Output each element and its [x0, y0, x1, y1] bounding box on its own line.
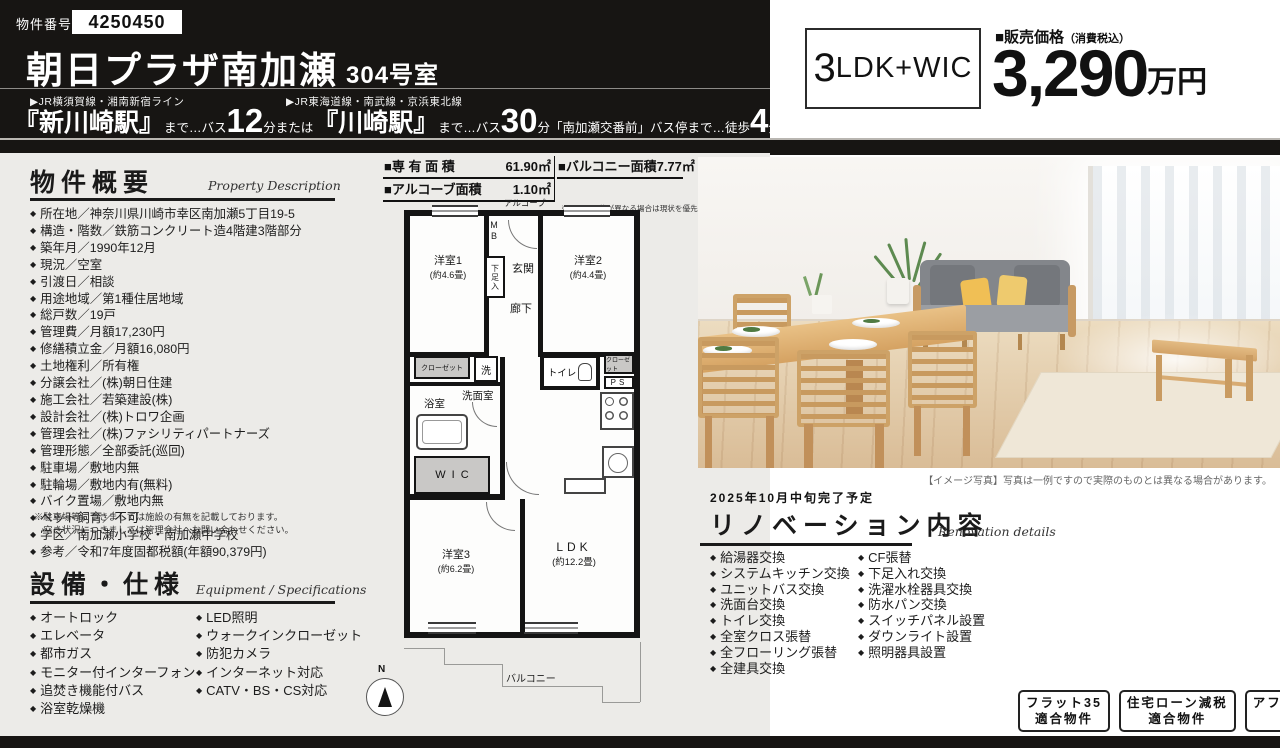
balcony-line — [640, 642, 641, 702]
equipment-rule — [30, 601, 335, 604]
station-2: 『川崎駅』 — [313, 111, 438, 136]
room2-size: (約4.4畳) — [544, 268, 632, 281]
bullet-icon: ◆ — [30, 547, 36, 556]
bullet-icon: ◆ — [30, 277, 36, 286]
list-item: ◆全フローリング張替 — [710, 645, 860, 661]
list-item: ◆引渡日／相談 — [30, 274, 375, 291]
list-item-label: 洗面台交換 — [720, 597, 785, 612]
room1-size: (約4.6畳) — [412, 268, 484, 281]
list-item-label: 都市ガス — [40, 646, 92, 661]
chair-leg — [804, 424, 812, 468]
bullet-icon: ◆ — [30, 361, 36, 370]
list-item: ◆オートロック — [30, 609, 195, 627]
chair-back — [797, 350, 890, 427]
list-item: ◆浴室乾燥機 — [30, 700, 195, 718]
shoe-cabinet-label: 下足入 — [490, 264, 501, 291]
balcony-line — [502, 686, 602, 687]
vase — [812, 295, 832, 314]
price-panel: 3 LDK+WIC ■販売価格（消費税込） 3,290 万円 — [770, 0, 1280, 138]
list-item-label: 築年月／1990年12月 — [40, 241, 156, 255]
wall — [410, 494, 505, 500]
list-item-label: 分譲会社／(株)朝日住建 — [40, 376, 172, 390]
coffee-table-leg — [1246, 355, 1252, 401]
closet-right: クローゼット — [604, 354, 634, 374]
list-item-label: 構造・階数／鉄筋コンクリート造4階建3階部分 — [40, 224, 302, 238]
sofa-leg — [1060, 334, 1065, 350]
bullet-icon: ◆ — [30, 446, 36, 455]
equipment-col1: ◆オートロック◆エレベータ◆都市ガス◆モニター付インターフォン◆追焚き機能付バス… — [30, 609, 195, 718]
chair-leg — [766, 416, 773, 468]
stove-burners-icon — [605, 397, 614, 406]
balcony-line — [502, 664, 503, 686]
bullet-icon: ◆ — [30, 378, 36, 387]
list-item: ◆モニター付インターフォン — [30, 664, 195, 682]
room2-name: 洋室2 — [544, 252, 632, 268]
list-item-label: オートロック — [40, 610, 118, 625]
bullet-icon: ◆ — [858, 648, 864, 657]
overview-note-line2: 空き状況につきましては管理会社へお問い合わせください。 — [34, 524, 294, 537]
header-divider — [0, 88, 770, 89]
walk-minutes: 4 — [750, 106, 768, 136]
chair-leg — [705, 416, 712, 468]
list-item-label: スイッチパネル設置 — [868, 613, 985, 628]
list-item: ◆システムキッチン交換 — [710, 566, 860, 582]
badge-line1: フラット35 — [1026, 695, 1102, 711]
list-item: ◆バイク置場／敷地内無 — [30, 493, 375, 510]
price: 3,290 万円 — [992, 40, 1207, 106]
list-item-label: バイク置場／敷地内無 — [40, 494, 164, 508]
layout-text: LDK+WIC — [836, 52, 973, 85]
bullet-icon: ◆ — [30, 613, 36, 622]
north-label: N — [378, 664, 385, 675]
renovation-col1: ◆給湯器交換◆システムキッチン交換◆ユニットバス交換◆洗面台交換◆トイレ交換◆全… — [710, 550, 860, 676]
badge-after-service: アフターサービス 保証付 — [1245, 690, 1280, 732]
list-item: ◆下足入れ交換 — [858, 566, 1028, 582]
coffee-table-leg — [1156, 355, 1162, 401]
garnish — [743, 327, 760, 331]
bullet-icon: ◆ — [710, 585, 716, 594]
list-item: ◆参考／令和7年度固都税額(年額90,379円) — [30, 544, 375, 561]
list-item-label: 管理形態／全部委託(巡回) — [40, 444, 185, 458]
list-item-label: モニター付インターフォン — [40, 665, 195, 680]
badge-line2: 保証付 — [1253, 711, 1280, 727]
chair-leg — [963, 406, 969, 456]
balcony-area-value: 7.77㎡ — [657, 156, 695, 175]
list-item: ◆設計会社／(株)トロワ企画 — [30, 409, 375, 426]
header-band: 物件番号 4250450 朝日プラザ南加瀬304号室 ▶JR横須賀線・湘南新宿ラ… — [0, 0, 770, 138]
list-item-label: 土地権利／所有権 — [40, 359, 139, 373]
list-item-label: 総戸数／19戸 — [40, 308, 116, 322]
badge-loan-tax: 住宅ローン減税 適合物件 — [1119, 690, 1236, 732]
bullet-icon: ◆ — [710, 553, 716, 562]
room1-name: 洋室1 — [412, 252, 484, 268]
bullet-icon: ◆ — [196, 649, 202, 658]
list-item: ◆分譲会社／(株)朝日住建 — [30, 375, 375, 392]
plate — [829, 339, 877, 350]
photo-chair — [797, 350, 890, 468]
bullet-icon: ◆ — [30, 395, 36, 404]
coffee-table-leg — [1225, 359, 1231, 398]
bullet-icon: ◆ — [30, 631, 36, 640]
entrance-label: 玄関 — [512, 260, 534, 276]
ldk-label: LDK (約12.2畳) — [536, 540, 612, 568]
renovation-col2: ◆CF張替◆下足入れ交換◆洗濯水栓器具交換◆防水パン交換◆スイッチパネル設置◆ダ… — [858, 550, 1028, 661]
list-item: ◆トイレ交換 — [710, 613, 860, 629]
toilet-room: トイレ — [540, 354, 600, 390]
bullet-icon: ◆ — [30, 704, 36, 713]
compass-icon — [366, 678, 404, 716]
wall — [520, 499, 525, 632]
list-item: ◆都市ガス — [30, 645, 195, 663]
list-item: ◆施工会社／若築建設(株) — [30, 392, 375, 409]
access-text: 分または — [263, 122, 313, 137]
list-item: ◆ダウンライト設置 — [858, 629, 1028, 645]
overview-rule — [30, 198, 335, 201]
chair-back — [908, 331, 978, 408]
access-line: 『新川崎駅』 まで…バス 12 分または 『川崎駅』 まで…バス 30 分「南加… — [14, 100, 770, 136]
plant-pot — [887, 278, 909, 304]
list-item: ◆全建具交換 — [710, 661, 860, 677]
station-1: 『新川崎駅』 — [14, 111, 164, 136]
room3-label: 洋室3 (約6.2畳) — [414, 546, 498, 575]
balcony-label: バルコニー — [506, 670, 556, 685]
closet-label: クローゼット — [421, 363, 463, 373]
renovation-rule — [700, 543, 912, 546]
certification-badges: フラット35 適合物件 住宅ローン減税 適合物件 アフターサービス 保証付 — [1018, 690, 1280, 732]
list-item-label: 下足入れ交換 — [868, 566, 946, 581]
exclusive-area-value: 61.90㎡ — [505, 156, 551, 175]
bullet-icon: ◆ — [710, 569, 716, 578]
window-room3 — [428, 622, 476, 634]
wall — [538, 216, 543, 357]
price-unit: 万円 — [1147, 57, 1207, 106]
list-item-label: 全建具交換 — [720, 661, 785, 676]
badge-line2: 適合物件 — [1127, 711, 1228, 727]
shoe-cabinet: 下足入 — [485, 256, 505, 298]
plant-leaf — [904, 238, 911, 280]
list-item: ◆スイッチパネル設置 — [858, 613, 1028, 629]
equipment-col2: ◆LED照明◆ウォークインクローゼット◆防犯カメラ◆インターネット対応◆CATV… — [196, 609, 346, 700]
bullet-icon: ◆ — [710, 632, 716, 641]
bullet-icon: ◆ — [710, 616, 716, 625]
list-item-label: 管理会社／(株)ファシリティパートナーズ — [40, 427, 270, 441]
list-item-label: 照明器具設置 — [868, 645, 946, 660]
chair-back — [698, 337, 779, 418]
list-item-label: エレベータ — [40, 628, 105, 643]
bullet-icon: ◆ — [196, 686, 202, 695]
bullet-icon: ◆ — [30, 310, 36, 319]
list-item: ◆構造・階数／鉄筋コンクリート造4階建3階部分 — [30, 223, 375, 240]
bathtub-inner — [422, 420, 462, 444]
bullet-icon: ◆ — [30, 226, 36, 235]
overview-note: ※駐車場等につきましては施設の有無を記載しております。 空き状況につきましては管… — [34, 511, 294, 536]
bullet-icon: ◆ — [710, 600, 716, 609]
interior-photo — [698, 157, 1280, 468]
bullet-icon: ◆ — [196, 668, 202, 677]
renovation-subtitle-en: Renovation details — [938, 524, 1056, 539]
bullet-icon: ◆ — [858, 585, 864, 594]
balcony-line — [602, 702, 640, 703]
badge-line2: 適合物件 — [1026, 711, 1102, 727]
page-title: 朝日プラザ南加瀬304号室 — [26, 40, 439, 94]
meter-box-label: MB — [489, 220, 499, 242]
list-item: ◆管理会社／(株)ファシリティパートナーズ — [30, 426, 375, 443]
bullet-icon: ◆ — [30, 463, 36, 472]
list-item-label: 洗濯水栓器具交換 — [868, 582, 972, 597]
list-item-label: システムキッチン交換 — [720, 566, 850, 581]
floor-plan: アルコーブ MB 下足入 玄関 廊下 洋室1 (約4.6畳) 洋室2 (約4.4… — [388, 196, 690, 741]
building-name: 朝日プラザ南加瀬 — [26, 50, 338, 91]
list-item: ◆ユニットバス交換 — [710, 582, 860, 598]
coffee-table-shelf — [1158, 375, 1250, 387]
photo-chair — [698, 337, 779, 468]
list-item-label: 施工会社／若築建設(株) — [40, 393, 172, 407]
list-item: ◆照明器具設置 — [858, 645, 1028, 661]
bus-minutes-1: 12 — [227, 106, 264, 136]
balcony-area-cell: ■バルコニー面積 7.77㎡ — [557, 156, 683, 179]
ldk-size: (約12.2畳) — [536, 554, 612, 568]
list-item-label: 用途地域／第1種住居地域 — [40, 292, 183, 306]
list-item: ◆築年月／1990年12月 — [30, 240, 375, 257]
property-number: 4250450 — [72, 10, 182, 34]
list-item: ◆管理形態／全部委託(巡回) — [30, 443, 375, 460]
bullet-icon: ◆ — [858, 600, 864, 609]
list-item-label: ウォークインクローゼット — [206, 628, 362, 643]
bullet-icon: ◆ — [858, 569, 864, 578]
list-item: ◆インターネット対応 — [196, 664, 346, 682]
list-item: ◆洗面台交換 — [710, 597, 860, 613]
room1-label: 洋室1 (約4.6畳) — [412, 252, 484, 281]
window-room2 — [564, 205, 610, 217]
sofa-arm — [1068, 285, 1076, 337]
list-item-label: 管理費／月額17,230円 — [40, 325, 165, 339]
ldk-name: LDK — [536, 540, 612, 554]
list-item-label: CATV・BS・CS対応 — [206, 683, 327, 698]
balcony-area-label: ■バルコニー面積 — [558, 156, 657, 175]
alcove-label: アルコーブ — [504, 197, 546, 209]
bullet-icon: ◆ — [30, 344, 36, 353]
overview-subtitle-en: Property Description — [208, 178, 341, 193]
layout-badge: 3 LDK+WIC — [805, 28, 981, 109]
washroom-label: 洗面室 — [462, 388, 494, 403]
list-item-label: 全室クロス張替 — [720, 629, 811, 644]
washer-label: 洗 — [481, 362, 491, 377]
list-item: ◆総戸数／19戸 — [30, 307, 375, 324]
toilet-icon — [578, 363, 592, 381]
list-item-label: 追焚き機能付バス — [40, 683, 144, 698]
balcony-line — [444, 648, 445, 664]
price-value: 3,290 — [992, 40, 1147, 106]
list-item: ◆防犯カメラ — [196, 645, 346, 663]
bullet-icon: ◆ — [30, 649, 36, 658]
list-item-label: 給湯器交換 — [720, 550, 785, 565]
badge-line1: アフターサービス — [1253, 695, 1280, 711]
toilet-label: トイレ — [548, 365, 577, 379]
bullet-icon: ◆ — [30, 243, 36, 252]
bathtub — [416, 414, 468, 450]
sofa-leg — [1018, 334, 1023, 350]
access-text: まで…バス — [438, 122, 501, 137]
list-item: ◆防水パン交換 — [858, 597, 1028, 613]
list-item-label: CF張替 — [868, 550, 911, 565]
bullet-icon: ◆ — [30, 260, 36, 269]
property-flyer: 物件番号 4250450 朝日プラザ南加瀬304号室 ▶JR横須賀線・湘南新宿ラ… — [0, 0, 1280, 748]
photo-coffee-table — [1152, 344, 1257, 403]
room3-name: 洋室3 — [414, 546, 498, 562]
badge-line1: 住宅ローン減税 — [1127, 695, 1228, 711]
list-item-label: 所在地／神奈川県川崎市幸区南加瀬5丁目19-5 — [40, 207, 295, 221]
list-item: ◆管理費／月額17,230円 — [30, 324, 375, 341]
bullet-icon: ◆ — [30, 686, 36, 695]
list-item: ◆所在地／神奈川県川崎市幸区南加瀬5丁目19-5 — [30, 206, 375, 223]
list-item-label: インターネット対応 — [206, 665, 323, 680]
vase-sprig — [803, 276, 812, 296]
bullet-icon: ◆ — [30, 412, 36, 421]
bullet-icon: ◆ — [30, 209, 36, 218]
chair-leg — [875, 424, 883, 468]
list-item-label: ユニットバス交換 — [720, 582, 824, 597]
access-text: 分「南加瀬交番前」バス停まで…徒歩 — [538, 122, 751, 137]
photo-caption: 【イメージ写真】写真は一例ですので実際のものとは異なる場合があります。 — [0, 472, 1272, 487]
overview-title: 物件概要 — [30, 163, 154, 199]
list-item-label: LED照明 — [206, 610, 257, 625]
list-item-label: 浴室乾燥機 — [40, 701, 105, 716]
list-item: ◆ウォークインクローゼット — [196, 627, 346, 645]
sink-bowl-icon — [608, 453, 628, 473]
list-item: ◆CF張替 — [858, 550, 1028, 566]
access-text: まで…バス — [164, 122, 227, 137]
room2-label: 洋室2 (約4.4畳) — [544, 252, 632, 281]
exclusive-area-label: ■専 有 面 積 — [384, 156, 455, 175]
list-item-label: ダウンライト設置 — [868, 629, 972, 644]
bullet-icon: ◆ — [710, 664, 716, 673]
list-item-label: 引渡日／相談 — [40, 275, 114, 289]
bullet-icon: ◆ — [710, 648, 716, 657]
list-item-label: トイレ交換 — [720, 613, 785, 628]
wall — [410, 382, 502, 386]
list-item-label: 参考／令和7年度固都税額(年額90,379円) — [40, 545, 267, 559]
closet-left: クローゼット — [414, 356, 470, 379]
renovation-schedule: 2025年10月中旬完了予定 — [710, 489, 874, 506]
list-item-label: 防水パン交換 — [868, 597, 947, 612]
bullet-icon: ◆ — [30, 668, 36, 677]
list-item: ◆現況／空室 — [30, 257, 375, 274]
pipe-space: PS — [604, 376, 634, 389]
list-item: ◆エレベータ — [30, 627, 195, 645]
list-item: ◆修繕積立金／月額16,080円 — [30, 341, 375, 358]
list-item: ◆土地権利／所有権 — [30, 358, 375, 375]
list-item-label: 防犯カメラ — [206, 646, 271, 661]
bullet-icon: ◆ — [858, 553, 864, 562]
list-item: ◆洗濯水栓器具交換 — [858, 582, 1028, 598]
list-item-label: 設計会社／(株)トロワ企画 — [40, 410, 185, 424]
bullet-icon: ◆ — [30, 496, 36, 505]
chair-leg — [914, 406, 920, 456]
property-number-label: 物件番号 — [16, 14, 72, 33]
list-item: ◆CATV・BS・CS対応 — [196, 682, 346, 700]
badge-flat35: フラット35 適合物件 — [1018, 690, 1110, 732]
closet-label: クローゼット — [606, 355, 632, 373]
list-item: ◆用途地域／第1種住居地域 — [30, 291, 375, 308]
overview-note-line1: ※駐車場等につきましては施設の有無を記載しております。 — [34, 511, 294, 524]
balcony-line — [404, 648, 444, 649]
bullet-icon: ◆ — [30, 327, 36, 336]
bottom-band — [0, 736, 1280, 748]
room3-size: (約6.2畳) — [414, 562, 498, 575]
list-item-label: 修繕積立金／月額16,080円 — [40, 342, 189, 356]
bath-label: 浴室 — [424, 396, 445, 411]
bullet-icon: ◆ — [858, 632, 864, 641]
ps-label: PS — [611, 378, 628, 387]
equipment-title: 設備・仕様 — [30, 565, 185, 601]
window-ldk — [524, 622, 578, 634]
layout-number: 3 — [814, 46, 836, 91]
bus-minutes-2: 30 — [501, 106, 538, 136]
window-room1 — [432, 205, 478, 217]
washer-space: 洗 — [474, 356, 498, 382]
list-item: ◆全室クロス張替 — [710, 629, 860, 645]
balcony-line — [444, 664, 502, 665]
list-item: ◆LED照明 — [196, 609, 346, 627]
vase-sprig — [815, 273, 824, 297]
bullet-icon: ◆ — [858, 616, 864, 625]
overview-list: ◆所在地／神奈川県川崎市幸区南加瀬5丁目19-5◆構造・階数／鉄筋コンクリート造… — [30, 206, 375, 561]
balcony-line — [602, 686, 603, 702]
compass-needle-icon — [378, 687, 392, 707]
list-item: ◆追焚き機能付バス — [30, 682, 195, 700]
unit-number: 304号室 — [346, 62, 439, 89]
bullet-icon: ◆ — [196, 631, 202, 640]
exclusive-area-cell: ■専 有 面 積 61.90㎡ — [383, 156, 555, 179]
bullet-icon: ◆ — [30, 294, 36, 303]
equipment-subtitle-en: Equipment / Specifications — [196, 582, 366, 597]
list-item-label: 現況／空室 — [40, 258, 102, 272]
list-item-label: 全フローリング張替 — [720, 645, 837, 660]
list-item: ◆給湯器交換 — [710, 550, 860, 566]
photo-chair — [908, 331, 978, 455]
bullet-icon: ◆ — [30, 429, 36, 438]
bullet-icon: ◆ — [196, 613, 202, 622]
hall-label: 廊下 — [510, 300, 532, 316]
